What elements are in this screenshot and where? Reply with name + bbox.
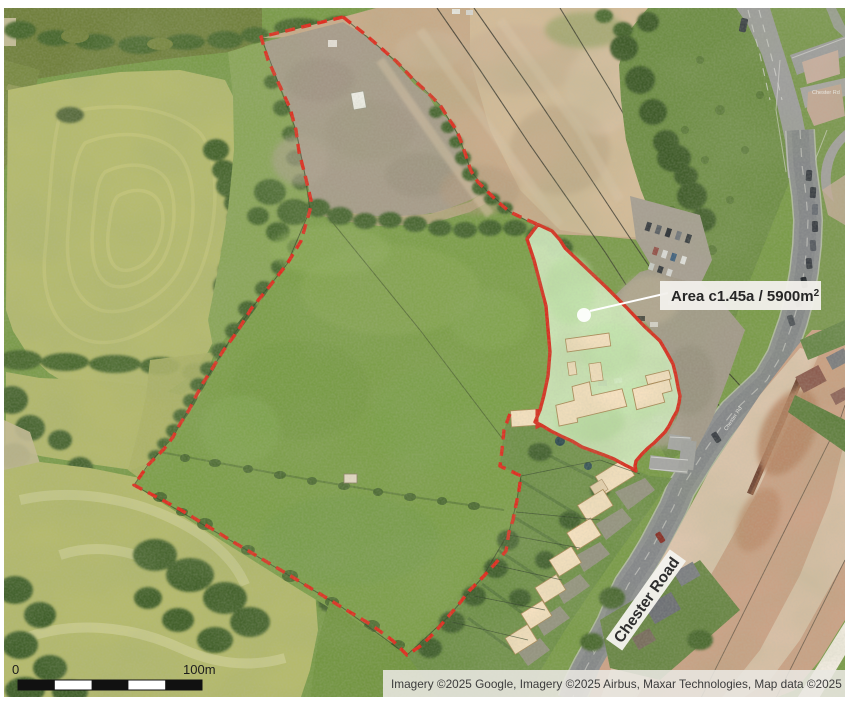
svg-text:0: 0 <box>12 662 19 677</box>
svg-text:Area c1.45a / 5900m2: Area c1.45a / 5900m2 <box>671 288 820 305</box>
svg-text:100m: 100m <box>183 662 216 677</box>
svg-text:Imagery ©2025 Google, Imagery: Imagery ©2025 Google, Imagery ©2025 Airb… <box>391 677 842 691</box>
